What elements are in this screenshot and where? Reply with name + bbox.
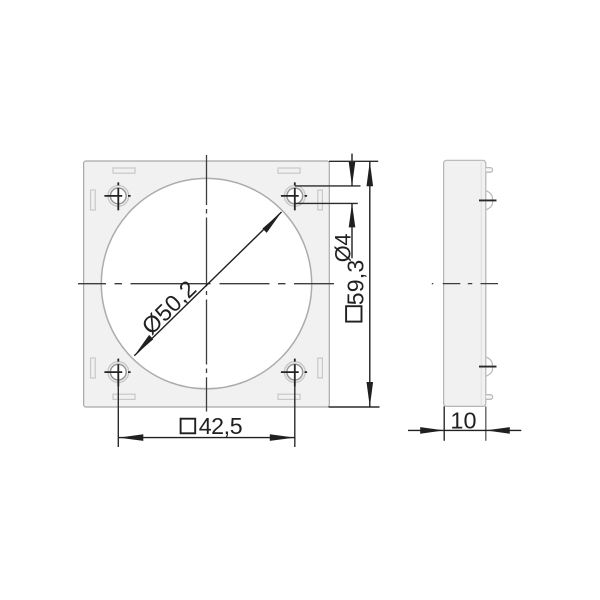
svg-text:42,5: 42,5 [199, 413, 243, 439]
svg-text:10: 10 [450, 408, 476, 434]
svg-text:Ø4: Ø4 [331, 234, 356, 263]
svg-text:59,3: 59,3 [342, 260, 368, 306]
